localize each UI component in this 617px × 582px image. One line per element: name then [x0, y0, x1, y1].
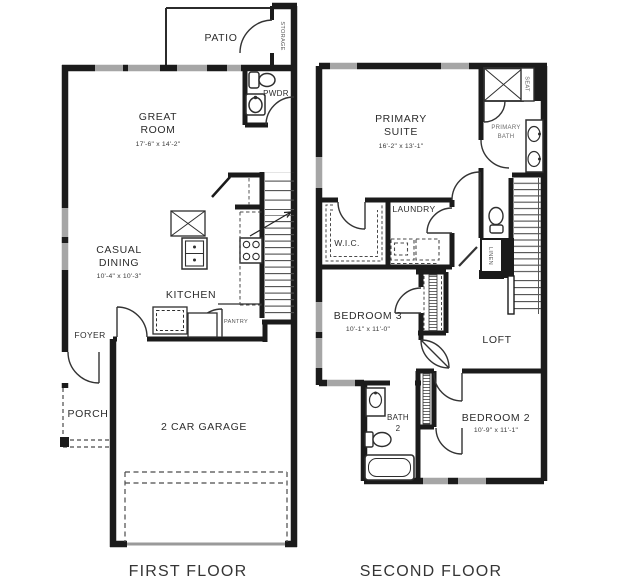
bedroom3-dims: 10'-1" x 11'-0" — [346, 326, 391, 333]
front-door — [68, 352, 99, 383]
wall-fill-seat — [534, 66, 544, 101]
first-floor-title: FIRST FLOOR — [129, 563, 248, 580]
stair-rail — [508, 276, 514, 314]
garage-label: 2 CAR GARAGE — [161, 421, 247, 433]
primary-suite-label-1: PRIMARY — [375, 113, 427, 125]
patio-door — [240, 20, 272, 53]
primary-suite-door — [452, 172, 480, 200]
pwdr-label: PWDR — [263, 89, 289, 98]
primary-suite-dims: 16'-2" x 13'-1" — [379, 143, 424, 150]
primary-bath-label-1: PRIMARY — [491, 125, 520, 131]
wic-shelves — [326, 205, 382, 261]
stair-closet-door — [212, 177, 230, 197]
foyer-label: FOYER — [74, 330, 105, 340]
kitchen-label: KITCHEN — [166, 289, 216, 301]
toilet-icon — [249, 72, 259, 88]
toilet-icon — [365, 432, 373, 447]
garage-entry-door — [117, 307, 147, 337]
casual-dining-label-1: CASUAL — [96, 244, 142, 256]
seat-label: SEAT — [524, 76, 530, 92]
great-room-label-1: GREAT — [139, 111, 177, 123]
casual-dining-label-2: DINING — [99, 257, 139, 269]
bath2-label-2: 2 — [396, 424, 401, 433]
wic-label: W.I.C. — [334, 238, 360, 248]
casual-dining-dims: 10'-4" x 10'-3" — [97, 273, 142, 280]
pantry-label: PANTRY — [224, 319, 248, 325]
floor-plan-image: PATIO STORAGE PWDR GREAT ROOM 17'-6" x 1… — [0, 0, 617, 582]
porch-label: PORCH — [68, 408, 109, 420]
bedroom2-door — [434, 373, 462, 401]
storage-label: STORAGE — [279, 21, 285, 50]
powder-door — [266, 97, 294, 125]
primary-suite-label-2: SUITE — [384, 126, 418, 138]
wic-door — [338, 202, 365, 229]
toilet-icon — [489, 208, 503, 225]
laundry-appliances — [391, 239, 439, 264]
laundry-label: LAUNDRY — [392, 204, 435, 214]
range-icon — [240, 238, 262, 263]
linen-door — [459, 247, 477, 266]
driveway-dashed — [125, 472, 287, 542]
floor-plan-svg: PATIO STORAGE PWDR GREAT ROOM 17'-6" x 1… — [0, 0, 617, 582]
second-floor-plan: PRIMARY SUITE 16'-2" x 13'-1" PRIMARY BA… — [319, 66, 547, 481]
bath2-label-1: BATH — [387, 413, 409, 422]
second-floor-title: SECOND FLOOR — [360, 563, 502, 580]
shower-door — [484, 101, 505, 122]
great-room-dims: 17'-6" x 14'-2" — [136, 141, 181, 148]
great-room-label-2: ROOM — [140, 124, 175, 136]
linen-label: LINEN — [487, 247, 493, 265]
bath2-fixtures — [365, 388, 414, 480]
loft-label: LOFT — [482, 334, 511, 346]
bedroom3-label: BEDROOM 3 — [334, 310, 402, 322]
primary-bath-door — [481, 140, 509, 168]
patio-label: PATIO — [205, 32, 238, 44]
bedroom2-closet-door — [436, 428, 462, 454]
porch-post — [60, 437, 69, 447]
window-bands — [65, 68, 241, 270]
first-floor-plan: PATIO STORAGE PWDR GREAT ROOM 17'-6" x 1… — [60, 6, 297, 547]
bedroom2-label: BEDROOM 2 — [462, 412, 530, 424]
primary-bath-label-2: BATH — [498, 134, 515, 140]
hall-double-doors — [421, 340, 449, 368]
bedroom2-dims: 10'-9" x 11'-1" — [474, 427, 519, 434]
base-cabinet — [188, 313, 217, 337]
